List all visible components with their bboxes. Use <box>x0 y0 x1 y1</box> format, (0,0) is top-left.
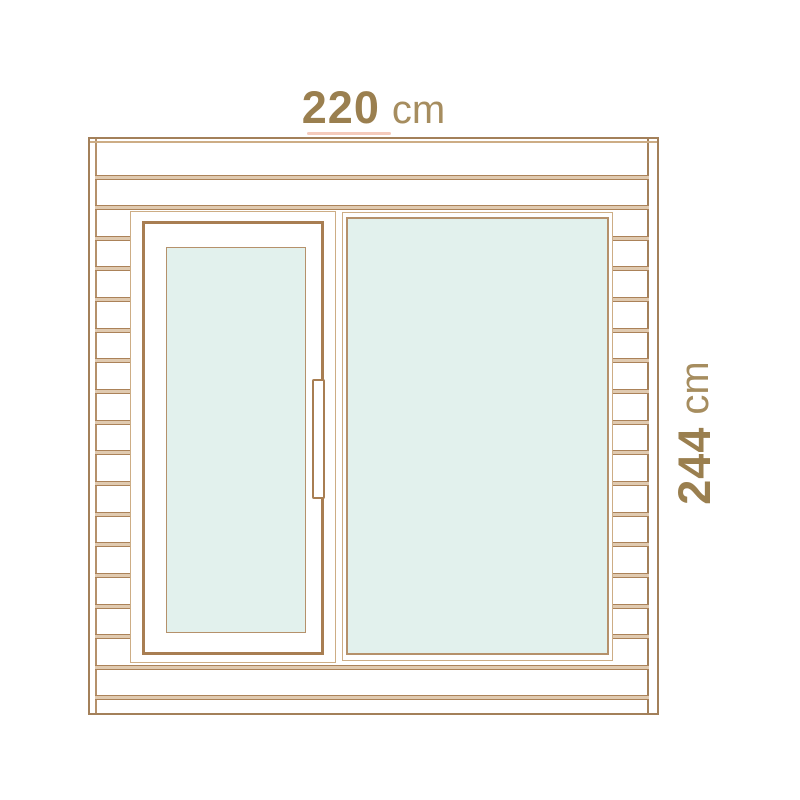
plank-seam <box>95 512 130 517</box>
plank-seam <box>613 328 649 333</box>
plank-seam <box>613 450 649 455</box>
plank-seam <box>95 389 130 394</box>
plank-seam <box>95 542 130 547</box>
width-dimension-value: 220 <box>302 82 380 133</box>
plank-seam <box>95 634 130 639</box>
plank-seam <box>95 358 130 363</box>
plank-seam <box>613 604 649 609</box>
plank-seam <box>613 236 649 241</box>
plank-seam <box>95 175 649 180</box>
plank-seam <box>613 358 649 363</box>
plank-seam <box>95 420 130 425</box>
plank-seam <box>613 389 649 394</box>
height-dimension-value: 244 <box>669 427 721 505</box>
plank-seam <box>95 604 130 609</box>
plank-seam <box>95 665 649 670</box>
plank-seam <box>613 420 649 425</box>
entry-door <box>130 211 336 663</box>
door-handle <box>312 379 325 499</box>
plank-seam <box>95 328 130 333</box>
plank-seam <box>613 481 649 486</box>
plank-seam <box>95 266 130 271</box>
plank-seam <box>95 205 649 210</box>
plank-seam <box>613 542 649 547</box>
label-underline-accent <box>307 132 391 135</box>
plank-seam <box>95 573 130 578</box>
height-dimension-label: 244cm <box>670 313 720 553</box>
right-corner-trim <box>647 139 657 713</box>
height-dimension-unit: cm <box>673 361 718 414</box>
plank-seam <box>613 266 649 271</box>
plank-seam <box>95 297 130 302</box>
door-glass-panel <box>166 247 306 633</box>
fixed-window <box>342 212 613 661</box>
plank-seam <box>613 573 649 578</box>
plank-seam <box>95 481 130 486</box>
width-dimension-label: 220cm <box>88 82 659 134</box>
width-dimension-unit: cm <box>392 88 445 132</box>
plank-seam <box>95 695 649 700</box>
plank-seam <box>95 450 130 455</box>
diagram-canvas: 220cm 244cm <box>0 0 800 800</box>
top-trim-line <box>90 141 657 143</box>
plank-seam <box>613 297 649 302</box>
window-glass <box>346 217 609 655</box>
left-corner-trim <box>90 139 97 713</box>
plank-seam <box>613 512 649 517</box>
cabin-front-elevation <box>88 137 659 715</box>
plank-seam <box>95 236 130 241</box>
plank-seam <box>613 634 649 639</box>
